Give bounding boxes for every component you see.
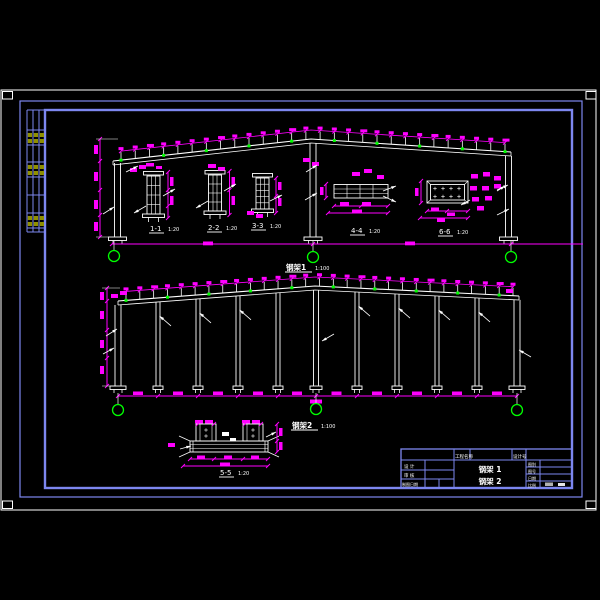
section-2-2-label: 2-2 (208, 224, 219, 232)
cad-sheet: 1-1 1:20 2-2 1:20 3-3 1:20 4-4 1:20 6-6 … (0, 0, 600, 600)
drawing-2-title: 钢架2 (292, 420, 312, 430)
sheet-content-line2: 钢架 2 (479, 476, 502, 486)
corner-mark (586, 92, 596, 100)
date-label: 日期 (528, 475, 536, 481)
detail-section-5-5 (168, 420, 283, 468)
project-name-label: 工程名称 (455, 453, 473, 460)
section-2-2-scale: 1:20 (226, 226, 237, 232)
draw-date-label: 制图日期 (402, 481, 418, 487)
cad-application-canvas: 1-1 1:20 2-2 1:20 3-3 1:20 4-4 1:20 6-6 … (0, 0, 600, 600)
scale-label: 比例 (528, 482, 536, 488)
revision-strip (27, 110, 45, 232)
section-1-1-scale: 1:20 (168, 227, 179, 233)
section-6-6-scale: 1:20 (457, 230, 468, 236)
serial-number-label: 设计号 (513, 453, 527, 460)
section-3-3-label: 3-3 (252, 222, 263, 230)
section-4-4-scale: 1:20 (369, 229, 380, 235)
section-6-6-label: 6-6 (439, 228, 451, 236)
sheet-content-line1: 钢架 1 (479, 464, 502, 474)
drawing-1-title: 钢架1 (286, 262, 306, 272)
drawing-2-scale: 1:100 (321, 424, 335, 430)
drawing-1-scale: 1:100 (315, 266, 329, 272)
sheet-border (1, 90, 596, 510)
section-1-1-label: 1-1 (150, 225, 161, 233)
corner-mark (3, 92, 13, 100)
section-5-5-label: 5-5 (220, 469, 231, 477)
elevation-frame-2 (100, 273, 531, 415)
section-5-5-scale: 1:20 (238, 471, 249, 477)
corner-mark (586, 501, 596, 509)
elevation-frame-1 (94, 127, 583, 263)
checker-label: 审 核 (404, 472, 415, 479)
section-4-4-label: 4-4 (351, 227, 363, 235)
designer-label: 设 计 (404, 463, 415, 470)
category-label: 图别 (528, 461, 536, 467)
outer-border (1, 90, 596, 510)
section-3-3-scale: 1:20 (270, 224, 281, 230)
corner-mark (3, 501, 13, 509)
number-label: 图号 (528, 468, 536, 474)
